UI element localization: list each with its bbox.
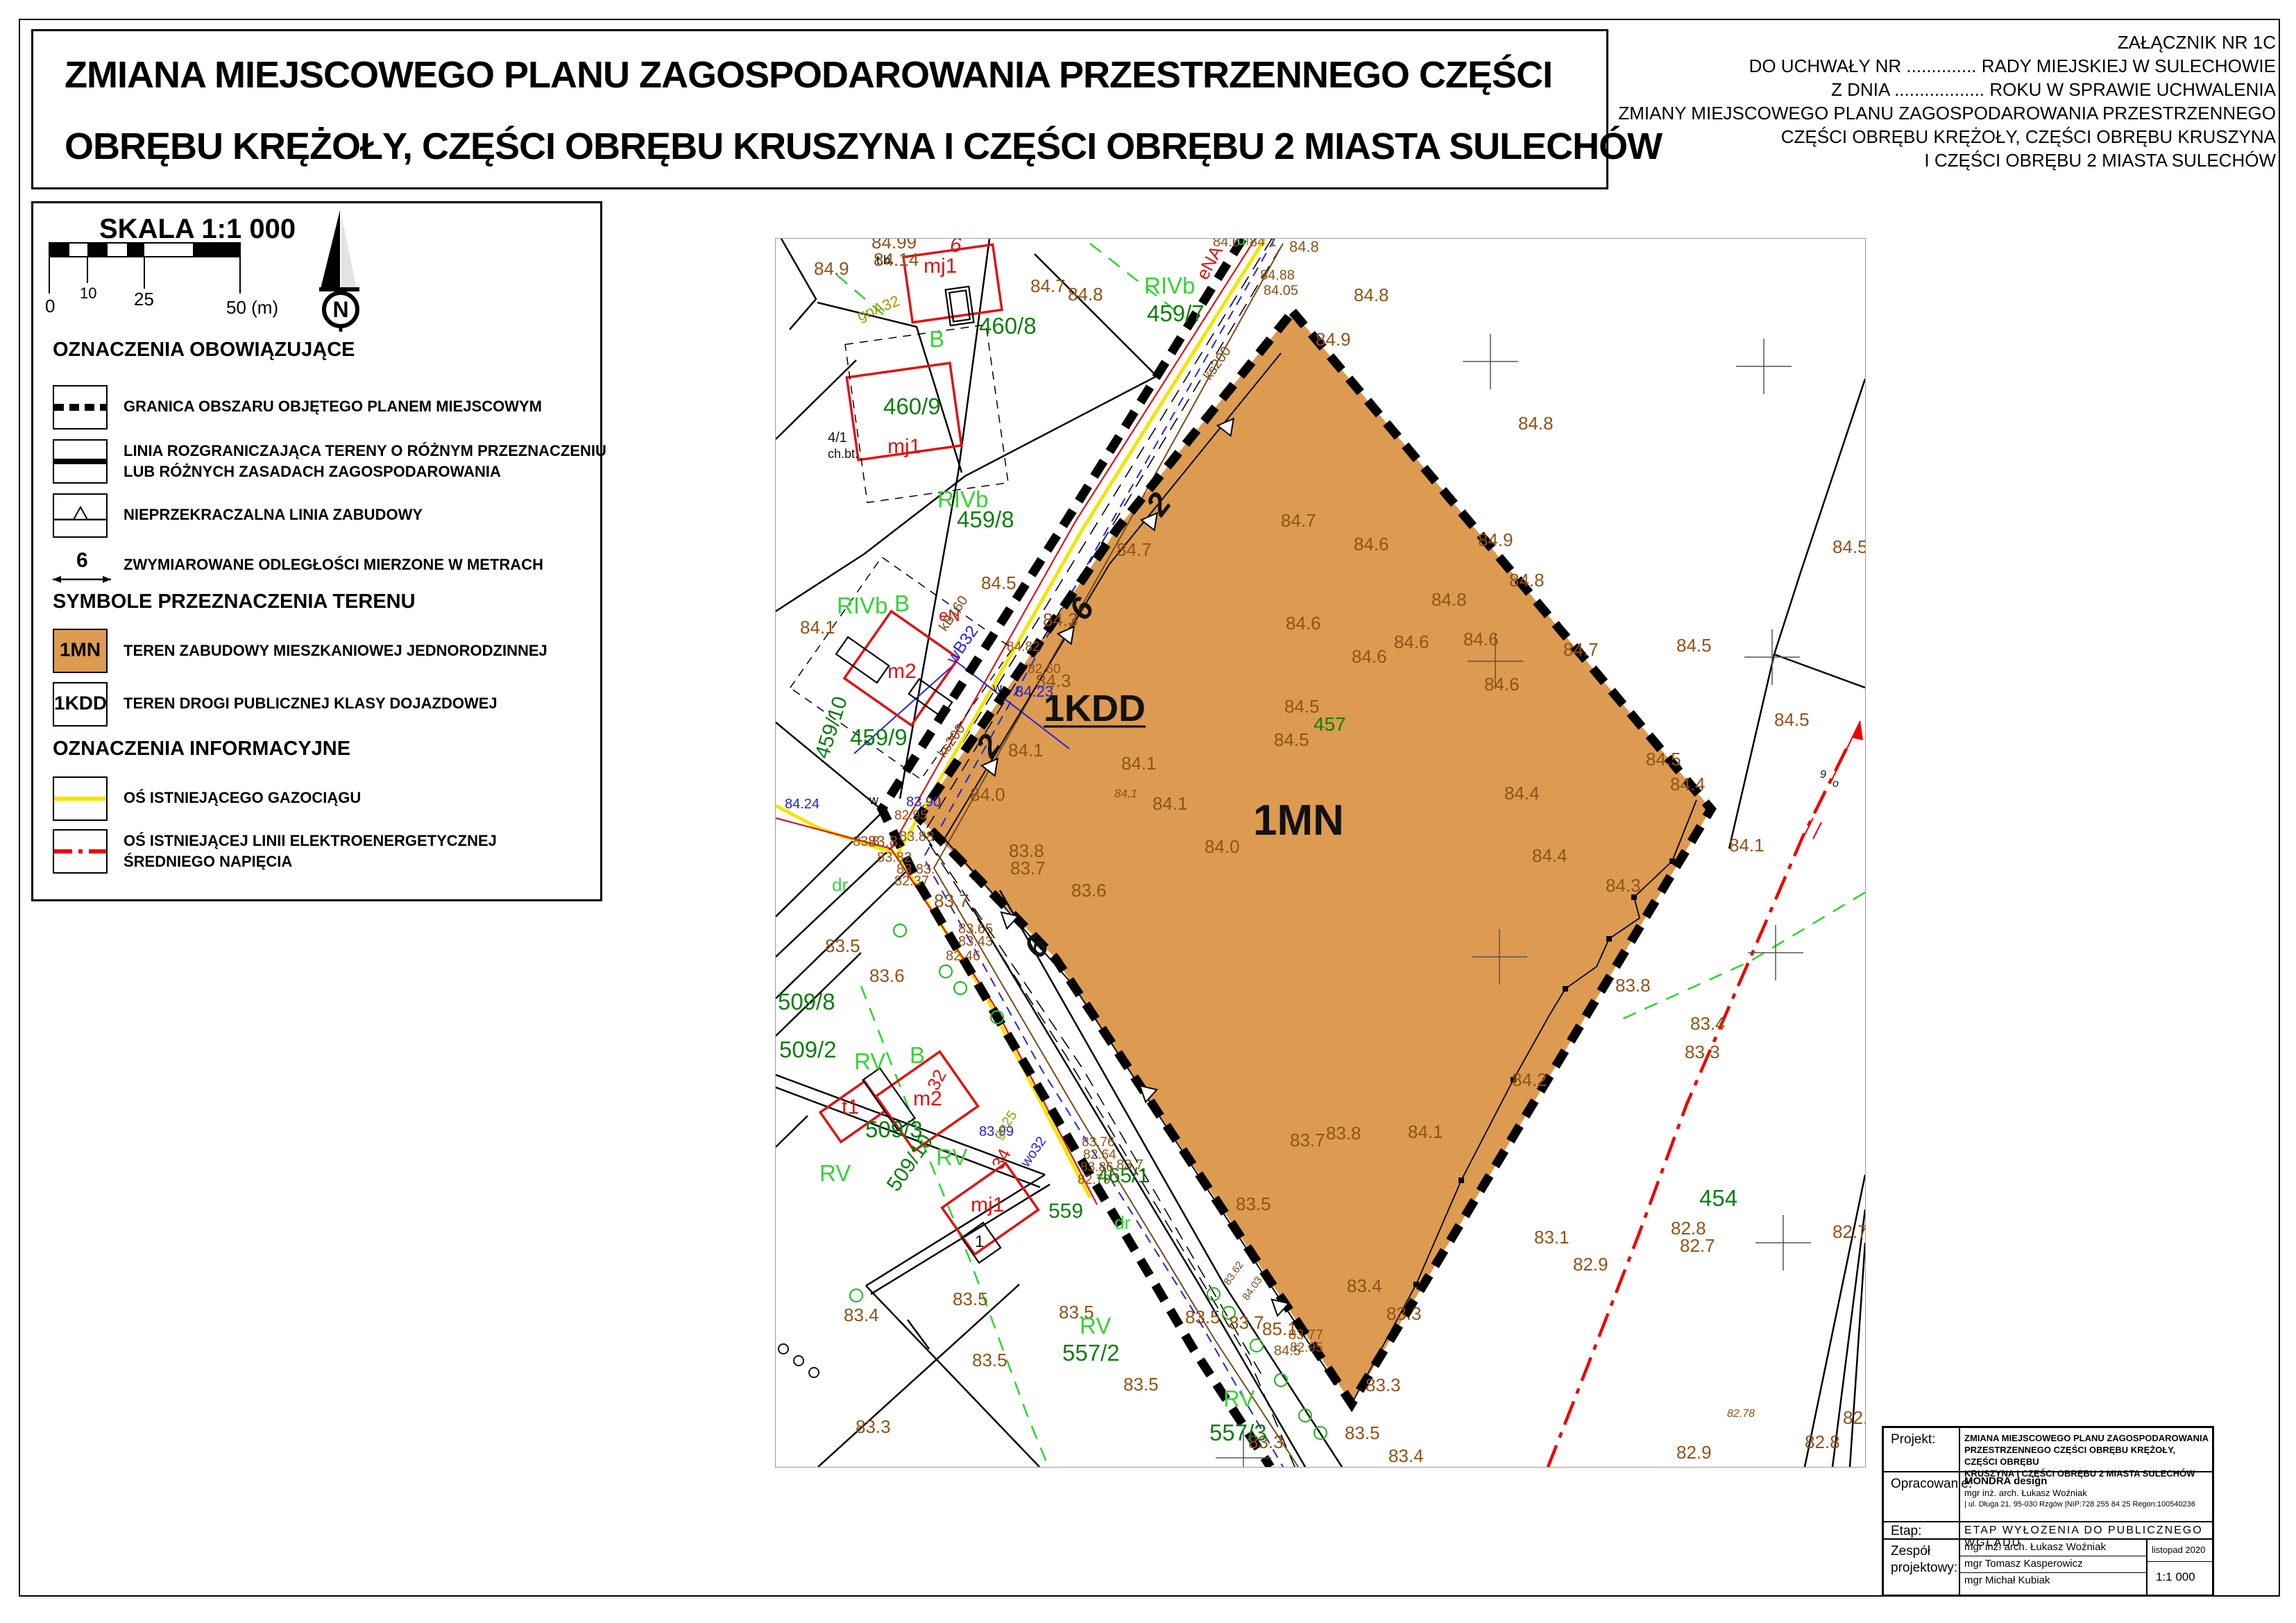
map-canvas: 1MN1KDD84.9984.1484.984.784.884.884.884.…	[775, 238, 1866, 1468]
map-label: 1KDD	[1044, 688, 1146, 729]
symbol-1mn-swatch: 1MN	[53, 629, 108, 673]
map-label: 84.2	[1512, 1069, 1547, 1090]
map-label: 84.24	[785, 797, 819, 812]
map-label: 84.6	[1354, 534, 1389, 554]
map-label: 84.5	[1676, 635, 1712, 656]
linia-rozgraniczajaca-swatch	[53, 439, 108, 484]
map-label: ks200	[1200, 344, 1234, 383]
map-label: B	[894, 590, 910, 616]
map-label: m2	[887, 660, 917, 683]
survey-cross	[1748, 925, 1803, 980]
table-etap-label: Etap:	[1891, 1524, 1921, 1539]
projekt-line: ZMIANA MIEJSCOWEGO PLANU ZAGOSPODAROWANI…	[1964, 1432, 2209, 1444]
map-label: 509/2	[779, 1037, 837, 1062]
map-label: 4/1	[828, 430, 847, 445]
map-label: 83.5	[953, 1289, 988, 1309]
legend-item-gaz: OŚ ISTNIEJĄCEGO GAZOCIĄGU	[124, 788, 361, 808]
map-label: 83.62	[1221, 1259, 1245, 1288]
map-label: 82.8	[1805, 1431, 1840, 1452]
map-label: 557/3	[1209, 1420, 1267, 1445]
map-label: 454	[1699, 1185, 1737, 1211]
map-label: 83.90	[906, 794, 941, 810]
map-label: wo32	[1018, 1134, 1050, 1171]
map-label: 84.03	[1240, 1275, 1264, 1303]
symbol-1mn-code: 1MN	[54, 639, 106, 661]
map-label: mj1	[887, 435, 921, 458]
map-label: 84.3	[1606, 875, 1641, 896]
point-symbol	[779, 1344, 788, 1354]
legend-item-elektro: OŚ ISTNIEJĄCEJ LINII ELEKTROENERGETYCZNE…	[124, 831, 497, 872]
map-label: 84.1	[1008, 740, 1044, 760]
map-label: 84.4	[1504, 783, 1540, 804]
map-label: 83.5	[972, 1350, 1007, 1370]
table-scale: 1:1 000	[2156, 1570, 2211, 1584]
point-symbol	[794, 1356, 803, 1366]
author-name: mgr inż. arch. Łukasz Woźniak	[1964, 1487, 2209, 1499]
map-label: 84.1	[1408, 1121, 1443, 1142]
team-member-3: mgr Michał Kubiak	[1964, 1574, 2145, 1586]
map-label: 84.1	[1250, 239, 1277, 250]
map-label: w	[992, 681, 1003, 695]
table-projekt-value: ZMIANA MIEJSCOWEGO PLANU ZAGOSPODAROWANI…	[1964, 1432, 2209, 1479]
title-box: ZMIANA MIEJSCOWEGO PLANU ZAGOSPODAROWANI…	[31, 29, 1608, 189]
map-label: 457	[1313, 713, 1346, 735]
map-label: 82.37	[894, 874, 929, 889]
map-label: 83.4	[1690, 1013, 1726, 1034]
map-label: 84.23	[1015, 683, 1053, 700]
point-symbols	[779, 1344, 819, 1377]
map-label: 82.78	[1727, 1408, 1755, 1420]
dim-six: 6	[76, 549, 88, 572]
table-projekt-label: Projekt:	[1891, 1432, 1935, 1447]
map-label: 83.3	[1685, 1042, 1720, 1062]
tree-icon	[954, 982, 967, 994]
map-label: 84.5	[1774, 709, 1810, 730]
granica-swatch	[53, 385, 108, 430]
map-label: 83.43	[958, 934, 993, 949]
map-label: 83.7	[1229, 1312, 1264, 1333]
map-label: RIVb	[1144, 273, 1195, 298]
map-label: 83.6	[869, 965, 905, 986]
map-label: 82.7	[1832, 1221, 1865, 1242]
tree-icon	[1250, 1339, 1263, 1352]
map-label: 83.3	[856, 1416, 891, 1437]
map-label: 83.4	[844, 1305, 879, 1325]
annex-line: ZAŁĄCZNIK NR 1C	[1582, 31, 2276, 54]
map-label: 83.3	[1386, 1303, 1422, 1324]
map-label: 6	[950, 239, 962, 257]
legend-item-elektro-l2: ŚREDNIEGO NAPIĘCIA	[124, 851, 497, 872]
annex-line: ZMIANY MIEJSCOWEGO PLANU ZAGOSPODAROWANI…	[1582, 101, 2276, 125]
zespol-label-l1: Zespół	[1891, 1543, 1957, 1560]
map-label: 84.8	[1354, 284, 1389, 305]
survey-cross	[1736, 339, 1792, 394]
map-label: 84.8	[1289, 239, 1319, 255]
map-label: 84.9	[1478, 529, 1513, 550]
map-label: 82.60	[1028, 662, 1061, 677]
map-label: 460/8	[979, 313, 1037, 339]
map-label: 83.1	[1534, 1227, 1570, 1248]
scale-tick-10: 10	[80, 284, 96, 302]
map-label: 83.8	[1615, 975, 1651, 996]
tree-icon	[850, 1289, 862, 1302]
symbol-1kdd-code: 1KDD	[54, 692, 106, 715]
project-table: Projekt: ZMIANA MIEJSCOWEGO PLANU ZAGOSP…	[1882, 1426, 2214, 1597]
map-label: 84.1	[1153, 793, 1188, 814]
map-label: RV	[936, 1144, 967, 1170]
map-label: t.b.	[876, 253, 894, 267]
map-label: 84.7	[1563, 639, 1599, 660]
map-drawing: 1MN1KDD84.9984.1484.984.784.884.884.884.…	[776, 239, 1865, 1467]
survey-cross	[1744, 629, 1800, 685]
legend-header-symbole: SYMBOLE PRZEZNACZENIA TERENU	[53, 590, 416, 613]
map-label: 84.88	[1260, 268, 1295, 283]
map-label: o	[1832, 778, 1839, 790]
map-label: 84.6	[1463, 629, 1499, 649]
map-label: 83.4	[1347, 1275, 1382, 1296]
map-label: 509/8	[778, 989, 835, 1014]
map-label: 83.88	[899, 829, 934, 844]
map-label: RV	[819, 1160, 851, 1186]
page-title-line2: OBRĘBU KRĘŻOŁY, CZĘŚCI OBRĘBU KRUSZYNA I…	[65, 125, 1662, 168]
map-label: 84.82	[1007, 640, 1040, 654]
legend-header-oblig: OZNACZENIA OBOWIĄZUJĄCE	[53, 339, 355, 362]
plan-sheet: ZMIANA MIEJSCOWEGO PLANU ZAGOSPODAROWANI…	[0, 0, 2296, 1623]
map-label: RV	[1223, 1386, 1255, 1411]
symbol-1mn-label: TEREN ZABUDOWY MIESZKANIOWEJ JEDNORODZIN…	[124, 640, 547, 661]
map-label: 82.95	[894, 808, 928, 823]
symbol-1kdd-swatch: 1KDD	[53, 682, 108, 726]
table-divider	[1960, 1572, 2146, 1573]
annex-line: DO UCHWAŁY NR .............. RADY MIEJSK…	[1582, 54, 2276, 78]
map-label: 83.8	[1326, 1123, 1361, 1144]
survey-cross	[1463, 334, 1518, 389]
map-label: dr	[832, 874, 848, 895]
map-label: 83.8	[853, 834, 880, 849]
map-label: 84.6	[1484, 674, 1520, 695]
map-label: dr	[1114, 1212, 1130, 1233]
map-label: 82.9	[1676, 1442, 1712, 1463]
map-label: 84.5	[1832, 536, 1865, 557]
map-label: 84.6	[1286, 613, 1321, 634]
map-label: 84,1	[1114, 787, 1137, 800]
map-label: 84.5	[1274, 729, 1309, 750]
map-label: 83.6	[1071, 880, 1107, 901]
point-symbol	[809, 1368, 819, 1377]
map-label: 84.7	[1281, 510, 1316, 531]
map-label: 82.95	[1290, 1341, 1323, 1355]
zwymiarowane-swatch: 6	[47, 547, 117, 589]
table-opracowanie-value: MONDRA design mgr inż. arch. Łukasz Woźn…	[1964, 1475, 2209, 1511]
annex-line: CZĘŚCI OBRĘBU KRĘŻOŁY, CZĘŚCI OBRĘBU KRU…	[1582, 125, 2276, 148]
map-label: 9	[1820, 769, 1826, 781]
map-label: B	[910, 1042, 925, 1068]
map-label: 83.7	[934, 890, 969, 911]
map-label: 84.8	[1518, 413, 1554, 434]
map-label: 1	[975, 1232, 984, 1251]
map-label: 459/7	[1147, 300, 1205, 326]
map-label: RV	[854, 1048, 885, 1074]
scale-bar: 0 10 25 50 (m)	[44, 235, 335, 325]
table-divider	[2148, 1561, 2212, 1562]
scale-tick-25: 25	[134, 289, 154, 309]
legend: SKALA 1:1 000 0 10 25 50 (m) N OZNACZ	[31, 201, 602, 901]
legend-item-zwymiarowane: ZWYMIAROWANE ODLEGŁOŚCI MIERZONE W METRA…	[124, 554, 543, 575]
tree-icon	[939, 965, 952, 978]
map-label: 83.3	[1366, 1375, 1401, 1395]
north-arrow-icon: N	[311, 207, 373, 335]
legend-item-elektro-l1: OŚ ISTNIEJĄCEJ LINII ELEKTROENERGETYCZNE…	[124, 831, 497, 851]
map-label: 459/10	[810, 694, 852, 761]
legend-header-info: OZNACZENIA INFORMACYJNE	[53, 738, 350, 760]
map-label: 84.6	[1352, 646, 1387, 667]
map-label: 84.1	[1729, 835, 1764, 856]
map-label: 84.0	[970, 784, 1005, 805]
elektro-swatch	[53, 829, 108, 874]
map-label: 465/1	[1097, 1164, 1149, 1187]
map-label: RIVb	[837, 593, 887, 618]
map-label: 83.5	[1345, 1422, 1380, 1443]
map-label: 83.5	[825, 935, 860, 956]
map-label: 84.7	[1030, 275, 1066, 296]
map-label: 84.8	[1509, 570, 1545, 590]
map-label: 83.5	[1185, 1307, 1221, 1327]
map-label: 82.46	[946, 949, 980, 964]
legend-item-granica: GRANICA OBSZARU OBJĘTEGO PLANEM MIEJSCOW…	[124, 396, 542, 417]
map-label: 84.9	[814, 258, 849, 279]
map-label: mj1	[971, 1193, 1004, 1216]
map-label: 83.7	[1010, 858, 1046, 878]
map-label: 84.8	[1068, 284, 1103, 305]
map-label: RV	[1080, 1313, 1111, 1339]
map-label: 84.9	[1316, 329, 1351, 350]
map-label: 459/9	[850, 724, 908, 750]
map-label: 84.1	[1121, 753, 1157, 774]
legend-item-linia: LINIA ROZGRANICZAJĄCA TERENY O RÓŻNYM PR…	[124, 441, 606, 482]
map-label: B	[929, 326, 944, 352]
company-name: MONDRA design	[1964, 1475, 2209, 1487]
map-label: 557/2	[1062, 1340, 1120, 1366]
map-label: 84.6	[1394, 631, 1429, 652]
map-label: dr	[1237, 239, 1251, 248]
legend-item-linia-l1: LINIA ROZGRANICZAJĄCA TERENY O RÓŻNYM PR…	[124, 441, 606, 461]
table-divider	[1884, 1521, 2212, 1522]
map-label: 84.0	[1205, 836, 1240, 857]
legend-item-linia-l2: LUB RÓŻNYCH ZASADACH ZAGOSPODAROWANIA	[124, 461, 606, 482]
table-divider	[1959, 1428, 1960, 1595]
map-label: 83.5	[1123, 1374, 1159, 1395]
annex-line: Z DNIA .................. ROKU W SPRAWIE…	[1582, 78, 2276, 101]
map-label: 1MN	[1253, 797, 1344, 844]
map-label: t1	[842, 1096, 859, 1119]
projekt-line: PRZESTRZENNEGO CZĘŚCI OBRĘBU KRĘŻOŁY, CZ…	[1964, 1444, 2209, 1468]
scale-tick-0: 0	[45, 296, 55, 316]
page-title-line1: ZMIANA MIEJSCOWEGO PLANU ZAGOSPODAROWANI…	[65, 53, 1552, 96]
table-opracowanie-label: Opracowanie:	[1891, 1477, 1972, 1492]
map-label: 84.1	[800, 617, 835, 638]
map-label: 83.5	[1236, 1193, 1271, 1214]
tree-icon	[894, 924, 906, 937]
map-label: 460/9	[883, 393, 941, 419]
map-label: 84.4	[1532, 845, 1567, 866]
map-label: 83.4	[1388, 1445, 1424, 1466]
map-label: 559	[1048, 1200, 1083, 1223]
table-zespol-label: Zespół projektowy:	[1891, 1543, 1957, 1577]
symbol-1kdd-label: TEREN DROGI PUBLICZNEJ KLASY DOJAZDOWEJ	[124, 693, 498, 714]
map-label: 84.05	[1264, 283, 1298, 298]
team-member-2: mgr Tomasz Kasperowicz	[1964, 1558, 2145, 1570]
annex-line: I CZĘŚCI OBRĘBU 2 MIASTA SULECHÓW	[1582, 148, 2276, 172]
tree-icon	[1207, 1288, 1220, 1300]
map-label: ch.bt.	[828, 447, 858, 461]
map-label: 82.7	[1843, 1407, 1865, 1428]
annex-block: ZAŁĄCZNIK NR 1C DO UCHWAŁY NR ..........…	[1582, 31, 2276, 172]
legend-item-zabudowy: NIEPRZEKRACZALNA LINIA ZABUDOWY	[124, 504, 423, 525]
map-label: 84.4	[1670, 774, 1706, 794]
map-label: 84.7	[1116, 539, 1152, 560]
map-label: RIVb	[937, 486, 988, 512]
map-label: 84.8	[1431, 589, 1467, 610]
north-letter: N	[332, 297, 348, 322]
company-address: | ul. Długa 21. 95-030 Rzgów |NIP:728 25…	[1964, 1499, 2209, 1511]
map-label: mj1	[924, 255, 957, 278]
table-date: listopad 2020	[2152, 1545, 2211, 1555]
linia-zabudowy-swatch	[53, 493, 108, 538]
map-label: 83.7	[1290, 1130, 1325, 1150]
map-label: 82.9	[1573, 1254, 1608, 1275]
table-divider	[1960, 1556, 2146, 1556]
map-label: w	[869, 793, 879, 807]
gazociag-swatch	[53, 776, 108, 821]
map-label: 82.7	[1680, 1235, 1715, 1256]
map-label: 84.5	[981, 572, 1017, 593]
survey-cross	[1755, 1215, 1811, 1271]
zespol-label-l2: projektowy:	[1891, 1560, 1957, 1577]
team-member-1: mgr inż. arch. Łukasz Woźniak	[1964, 1541, 2145, 1553]
map-label: 84.5	[1646, 749, 1681, 770]
scale-tick-50: 50 (m)	[226, 297, 278, 318]
